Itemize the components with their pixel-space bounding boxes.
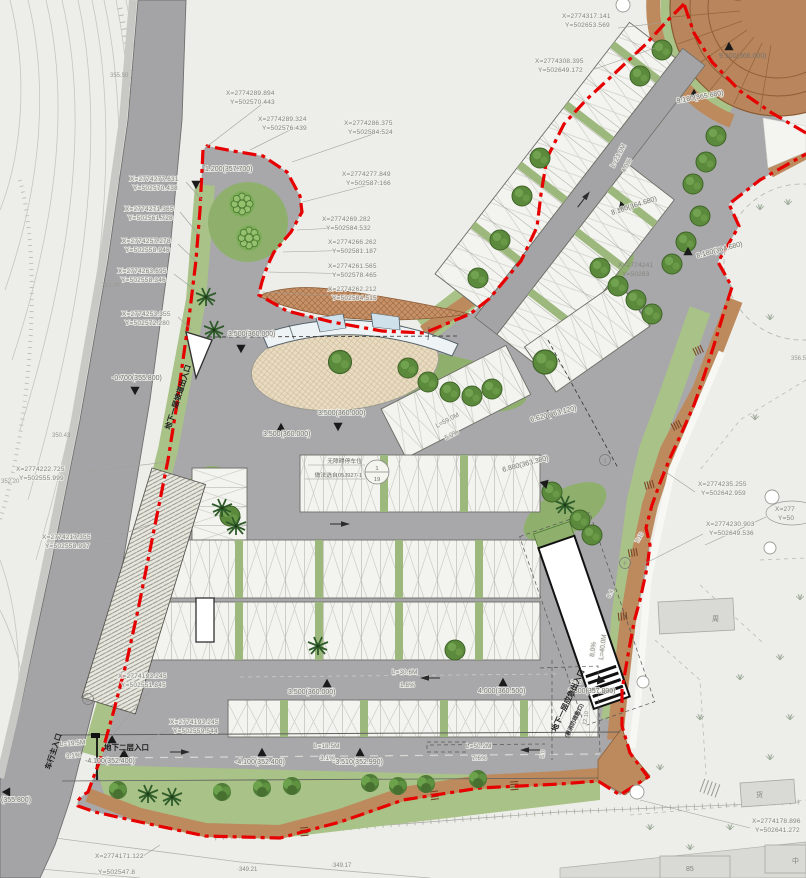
coord-label: Y=502587.166 (346, 180, 391, 187)
spot-level: ·349.17 (331, 863, 352, 869)
elevation-label: -3.510(352.990) (333, 759, 383, 766)
coord-label: Y=502578.465 (332, 272, 377, 279)
coord-label: X=2774253.355 (122, 311, 171, 318)
coord-label: X=2774277.849 (342, 171, 391, 178)
coord-label: X=2774261.565 (328, 263, 377, 270)
coord-label: X=2774241 (618, 262, 653, 269)
bubble-source: 做法选自05J927-1 (315, 471, 362, 479)
bubble-den: 19 (374, 477, 380, 483)
grade-label: L=18.5M (314, 743, 339, 750)
coord-label: X=2774178.896 (752, 818, 801, 825)
coord-label: Y=50 (778, 515, 794, 522)
bubble-title: 无障碍停车位 (327, 457, 362, 465)
contour-label: 352.20 (1, 479, 20, 485)
coord-label: X=2774222.725 (16, 466, 65, 473)
coord-label: X=2774266.262 (328, 239, 377, 246)
coord-label: Y=502561.728 (128, 215, 173, 222)
coord-label: X=2774230.903 (706, 521, 755, 528)
coord-label: X=2774257.278 (122, 238, 171, 245)
coord-label: Y=502581.187 (332, 248, 377, 255)
coord-label: X=2774289.894 (226, 90, 275, 97)
coord-label: Y=502547.8 (98, 869, 135, 876)
coord-label: X=2774269.282 (322, 216, 371, 223)
coord-label: Y=502642.959 (701, 490, 746, 497)
flower-tree-icon (229, 191, 255, 217)
mark-label: B (86, 698, 90, 704)
coord-label: Y=502649.172 (538, 67, 583, 74)
bubble-num: 1 (375, 466, 378, 472)
coord-label: Y=502584.524 (348, 129, 393, 136)
elevation-label: (355.800) (1, 797, 31, 804)
coord-label: X=2774235.255 (698, 481, 747, 488)
coord-label: Y=502558.346 (121, 277, 166, 284)
elevation-label: -0.700(355.800) (112, 375, 162, 382)
contour-label: 355.50 (110, 73, 129, 79)
elevation-label: -4.100(352.400) (85, 758, 135, 765)
elevation-label: 3.500(360.000) (288, 689, 335, 696)
elevation-label: 3.500(360.000) (228, 331, 275, 338)
coord-label: Y=502570.438 (133, 185, 178, 192)
grade-label: 7.6% (472, 755, 487, 762)
coord-label: Y=502584.515 (332, 295, 377, 302)
coord-label: Y=502559.544 (173, 728, 218, 735)
coord-label: Y=502572.280 (125, 320, 170, 327)
coord-label: X=2774317.141 (562, 13, 611, 20)
coord-label: X=2774193.245 (118, 673, 167, 680)
ext-building-label: 85 (686, 866, 694, 873)
entrance-label-b2: 地下二层入口 (104, 742, 149, 752)
coord-label: X=2774289.324 (258, 116, 307, 123)
elevation-label: 4.000(360.500) (478, 688, 525, 695)
coord-label: X=2774171.122 (95, 853, 144, 860)
coord-label: X=2774308.395 (535, 58, 584, 65)
coord-label: Y=502584.532 (326, 225, 371, 232)
grade-label: 1.8% (400, 682, 415, 689)
elevation-label: -4.100(352.400) (235, 759, 285, 766)
coord-label: Y=502641.272 (755, 827, 800, 834)
grade-label: 3.1% (66, 752, 81, 760)
coord-label: X=2774217.355 (42, 534, 91, 541)
coord-label: Y=502555.999 (19, 475, 64, 482)
coord-label: X=2774263.695 (118, 268, 167, 275)
coord-label: Y=502576.439 (262, 125, 307, 132)
contour-label: 356.5 (791, 356, 806, 362)
coord-label: Y=502551.845 (121, 682, 166, 689)
coord-label: Y=502649.536 (709, 530, 754, 537)
elevation-label: 3.500(360.000) (263, 431, 310, 438)
dim-label: 5.0 (540, 750, 547, 758)
ext-building-label: 中 (792, 856, 799, 865)
stair-core-building (196, 598, 214, 642)
ext-building-label: 货 (756, 790, 763, 799)
mark-label: 1 (603, 459, 606, 465)
coord-label: X=277 (775, 506, 795, 513)
coord-label: X=2774193.245 (170, 719, 219, 726)
coord-label: Y=502558.997 (45, 543, 90, 550)
grade-label: L=50.2M (466, 743, 491, 750)
flower-tree-icon (236, 225, 262, 251)
elevation-label: 9.500(366.000) (719, 53, 766, 60)
coord-label: Y=50263 (622, 271, 650, 278)
grade-label: L=30.6M (392, 669, 417, 676)
ext-building-label: 周 (712, 615, 719, 623)
coord-label: X=2774271.365 (125, 206, 174, 213)
coord-label: X=2774286.375 (344, 120, 393, 127)
site-plan-drawing: X=2774289.894 Y=502570.443 X=2774289.324… (0, 0, 806, 878)
coord-label: X=2774262.212 (328, 286, 377, 293)
contour-label: 351.90 (102, 283, 121, 289)
contour-label: 350.43 (52, 433, 71, 439)
site-plan-canvas: X=2774289.894 Y=502570.443 X=2774289.324… (0, 0, 806, 878)
coord-label: X=2774277.631 (130, 176, 179, 183)
elevation-label: 3.500(360.000) (318, 410, 365, 417)
coord-label: Y=502653.569 (565, 22, 610, 29)
elevation-label: 1.200(357.700) (205, 166, 252, 173)
coord-label: Y=502570.443 (230, 99, 275, 106)
spot-level: ·349.21 (237, 867, 258, 873)
coord-label: Y=502558.946 (125, 247, 170, 254)
grade-label: 3.1% (320, 755, 335, 762)
